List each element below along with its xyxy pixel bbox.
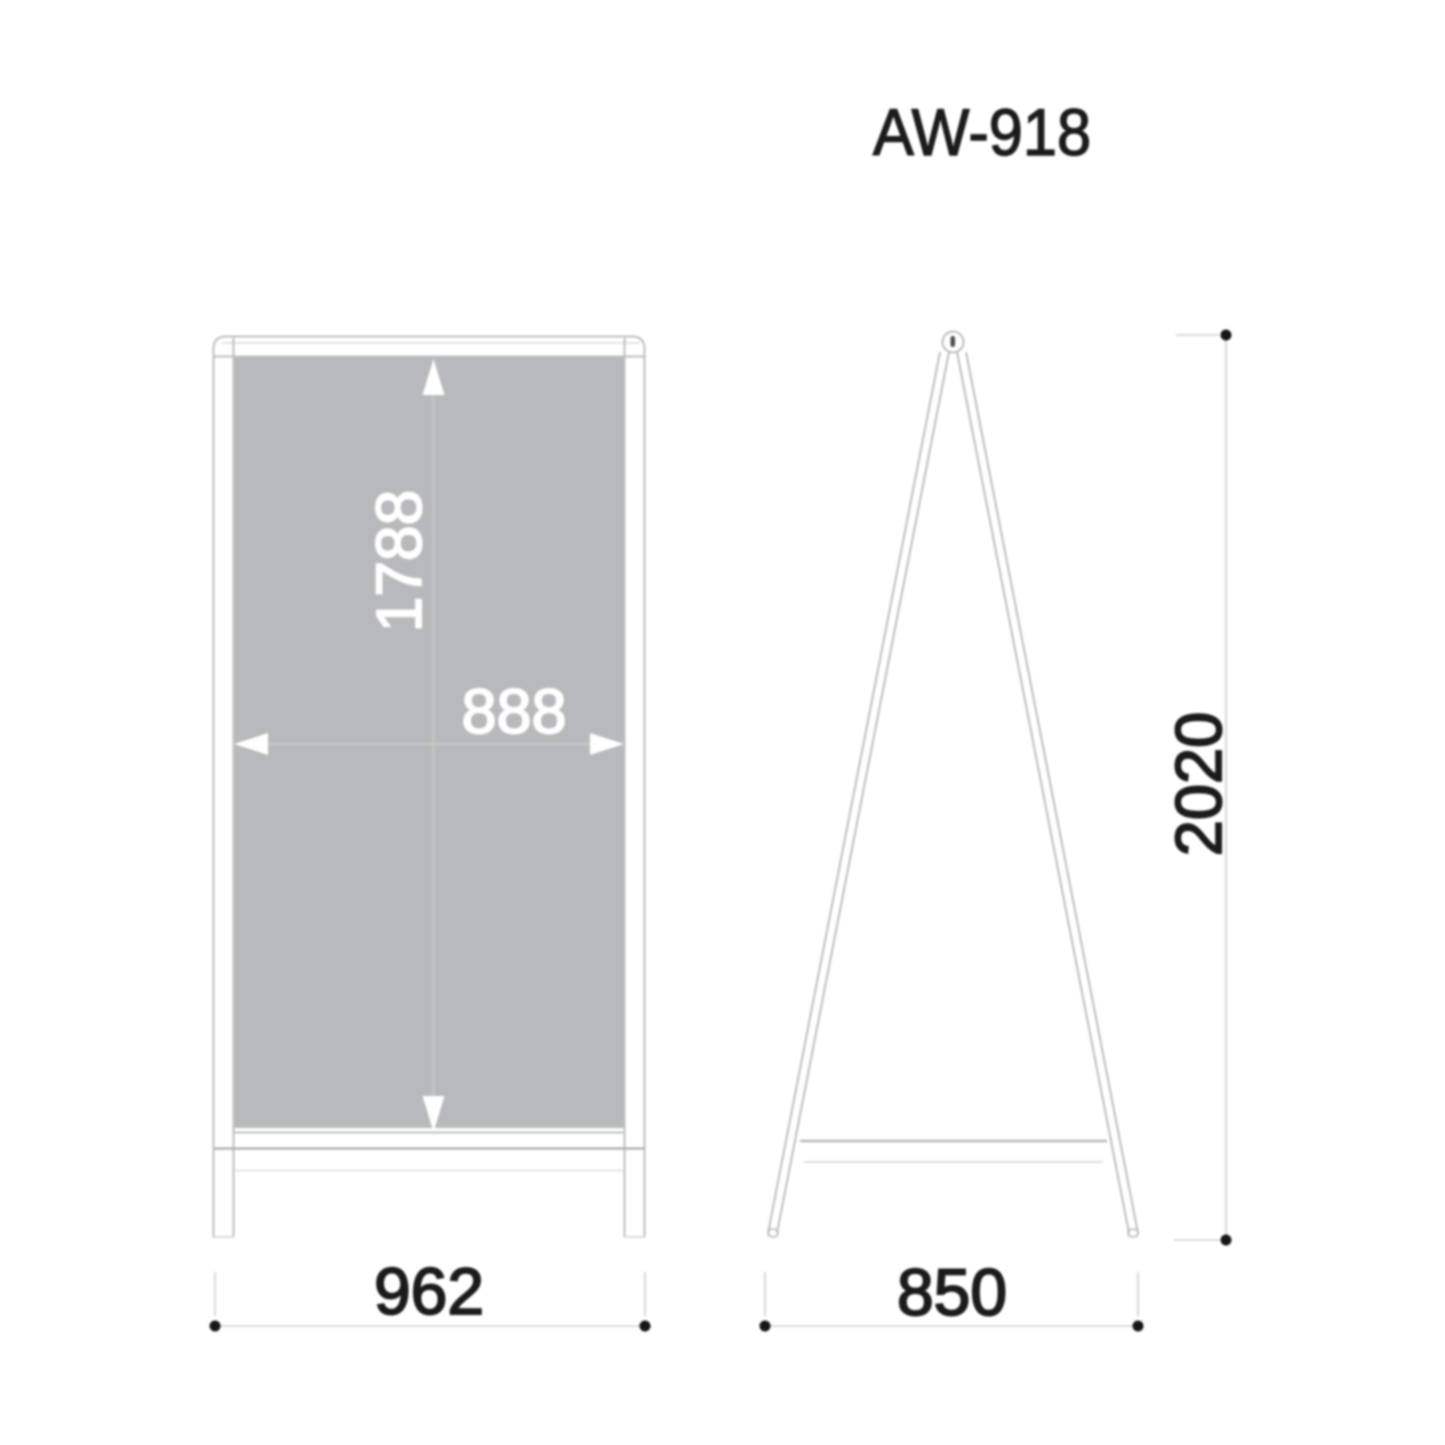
svg-text:850: 850 bbox=[897, 1255, 1007, 1329]
svg-text:888: 888 bbox=[461, 677, 566, 747]
svg-text:962: 962 bbox=[374, 1254, 484, 1328]
svg-text:AW-918: AW-918 bbox=[873, 95, 1091, 170]
svg-text:1788: 1788 bbox=[363, 490, 435, 632]
svg-text:2020: 2020 bbox=[1162, 712, 1235, 857]
